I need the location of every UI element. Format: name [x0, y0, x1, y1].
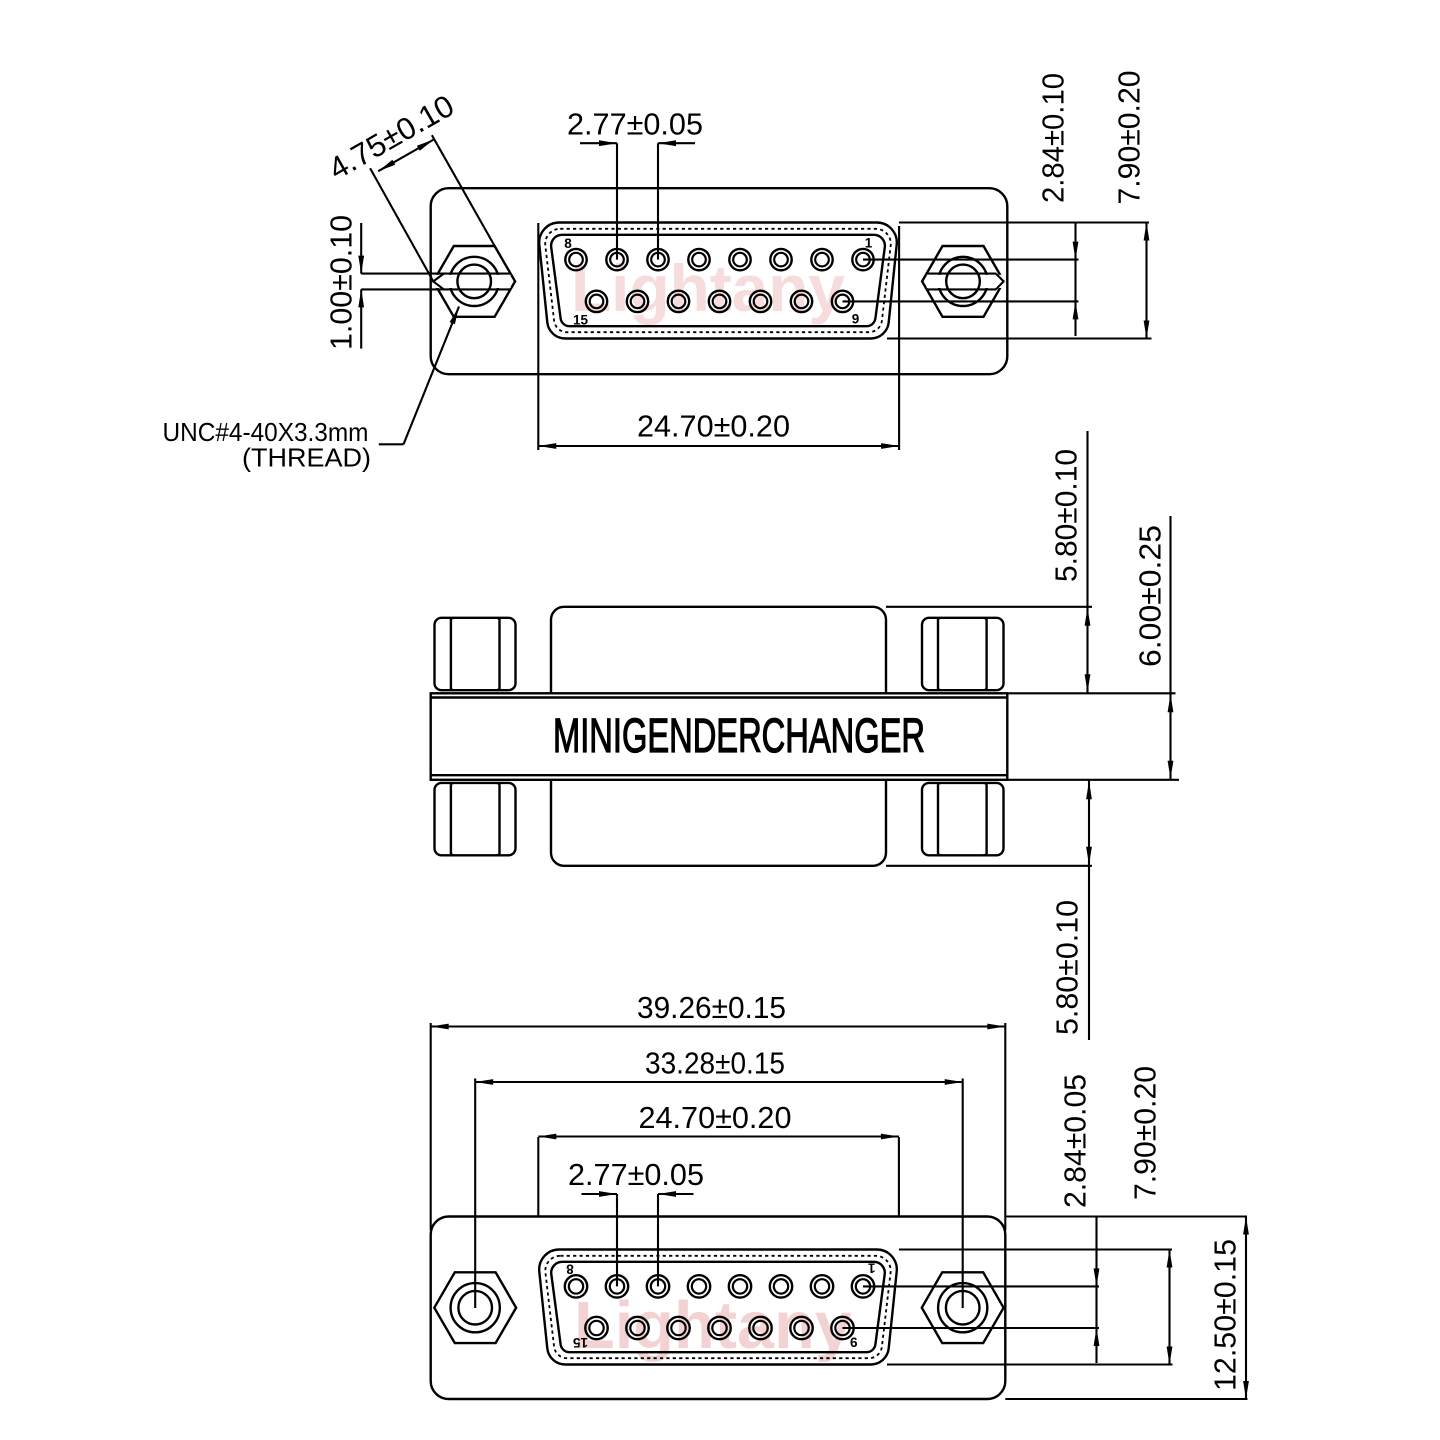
svg-text:39.26±0.15: 39.26±0.15: [637, 990, 786, 1025]
svg-text:24.70±0.20: 24.70±0.20: [637, 409, 790, 444]
svg-text:24.70±0.20: 24.70±0.20: [639, 1100, 792, 1135]
svg-text:9: 9: [852, 312, 860, 327]
svg-text:5.80±0.10: 5.80±0.10: [1049, 449, 1084, 582]
svg-text:7.90±0.20: 7.90±0.20: [1128, 1066, 1163, 1200]
svg-text:7.90±0.20: 7.90±0.20: [1112, 71, 1147, 205]
svg-text:15: 15: [573, 1335, 589, 1350]
svg-text:2.84±0.10: 2.84±0.10: [1036, 73, 1071, 203]
svg-text:8: 8: [564, 236, 572, 251]
svg-text:8: 8: [566, 1262, 574, 1277]
svg-text:15: 15: [573, 313, 589, 328]
svg-text:1: 1: [865, 236, 873, 251]
svg-text:2.77±0.05: 2.77±0.05: [567, 107, 703, 142]
svg-text:(THREAD): (THREAD): [242, 443, 371, 473]
svg-text:1.00±0.10: 1.00±0.10: [324, 215, 359, 350]
svg-text:Lightany: Lightany: [571, 251, 845, 325]
svg-text:1: 1: [868, 1261, 876, 1276]
svg-text:33.28±0.15: 33.28±0.15: [645, 1046, 785, 1081]
svg-text:6.00±0.25: 6.00±0.25: [1133, 525, 1168, 667]
svg-text:2.84±0.05: 2.84±0.05: [1058, 1074, 1093, 1208]
svg-text:MINIGENDERCHANGER: MINIGENDERCHANGER: [553, 710, 925, 763]
svg-text:12.50±0.15: 12.50±0.15: [1208, 1239, 1243, 1391]
svg-text:5.80±0.10: 5.80±0.10: [1050, 900, 1085, 1035]
svg-text:9: 9: [850, 1335, 858, 1350]
svg-text:2.77±0.05: 2.77±0.05: [568, 1157, 704, 1192]
